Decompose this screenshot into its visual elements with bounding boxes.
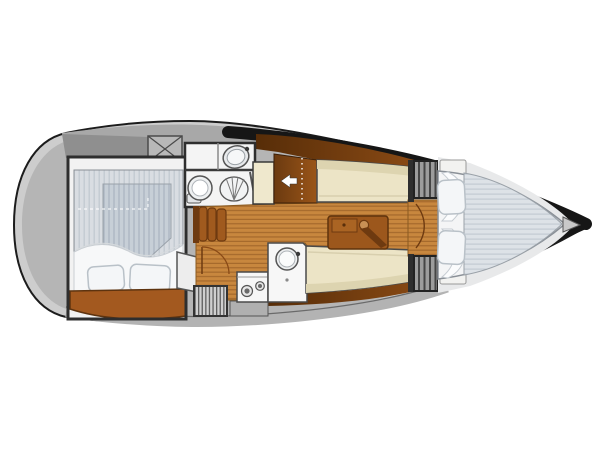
boat-floorplan-svg — [0, 0, 600, 450]
galley-cabinet — [253, 162, 274, 204]
hanging-locker — [194, 286, 227, 316]
stove-icon — [237, 272, 268, 302]
galley-faucet — [296, 252, 300, 256]
galley-step — [230, 301, 268, 316]
steps-rail — [193, 206, 199, 243]
step-2 — [208, 208, 216, 241]
aft-cabin — [68, 157, 201, 319]
companionway-panel — [274, 154, 317, 203]
salon-table — [328, 216, 388, 249]
aft-pillow-left — [87, 265, 125, 292]
vberth-pillow-bottom — [437, 230, 466, 264]
galley-counter — [268, 243, 307, 302]
floorplan-canvas — [0, 0, 600, 450]
aft-cabin-shelf — [70, 289, 186, 319]
forward-bulkhead — [408, 160, 439, 292]
shower-basin-icon — [220, 177, 248, 201]
vberth-pillow-top — [437, 179, 466, 214]
locker-starboard — [414, 161, 438, 198]
locker-port — [414, 256, 438, 291]
step-3 — [217, 209, 226, 241]
settee-starboard — [317, 160, 412, 202]
step-1 — [199, 207, 207, 241]
stern-deck-shadow — [62, 134, 148, 158]
v-berth — [437, 157, 580, 293]
head-bathroom — [185, 143, 256, 207]
